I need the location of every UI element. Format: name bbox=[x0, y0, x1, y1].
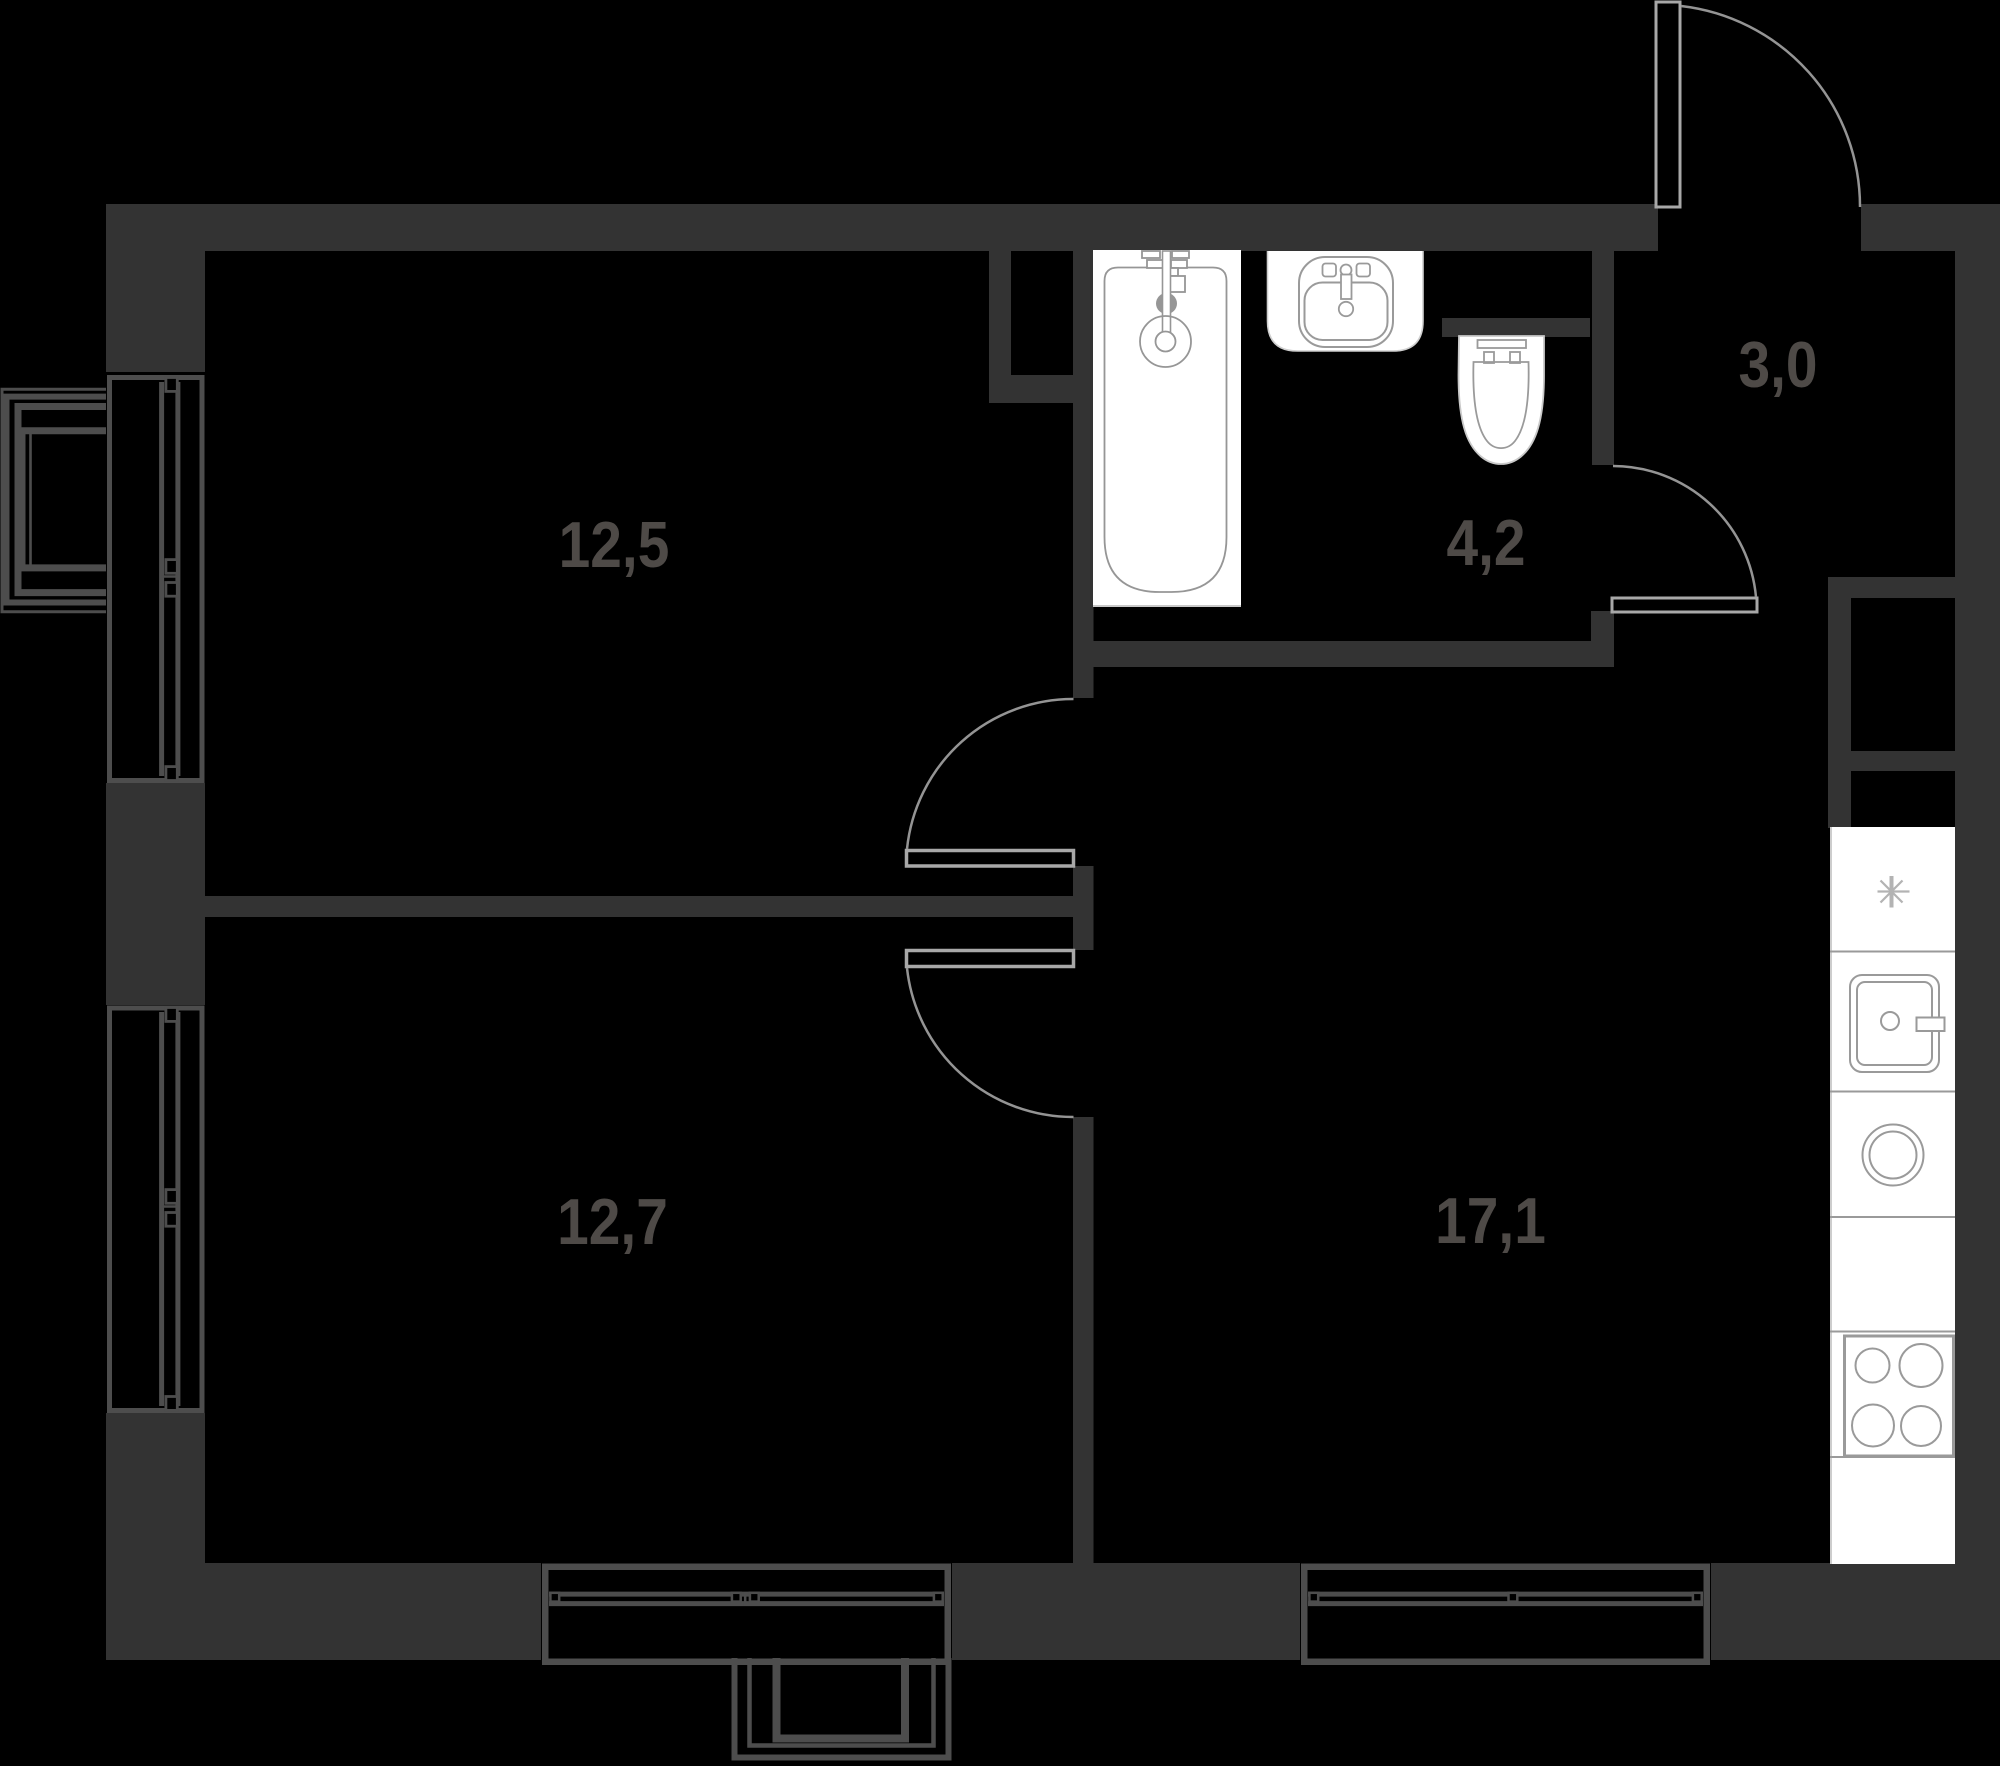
svg-text:3,0: 3,0 bbox=[1738, 328, 1817, 400]
svg-text:17,1: 17,1 bbox=[1435, 1184, 1546, 1256]
svg-text:12,7: 12,7 bbox=[557, 1185, 668, 1257]
svg-text:12,5: 12,5 bbox=[559, 508, 670, 580]
svg-text:4,2: 4,2 bbox=[1446, 506, 1525, 578]
